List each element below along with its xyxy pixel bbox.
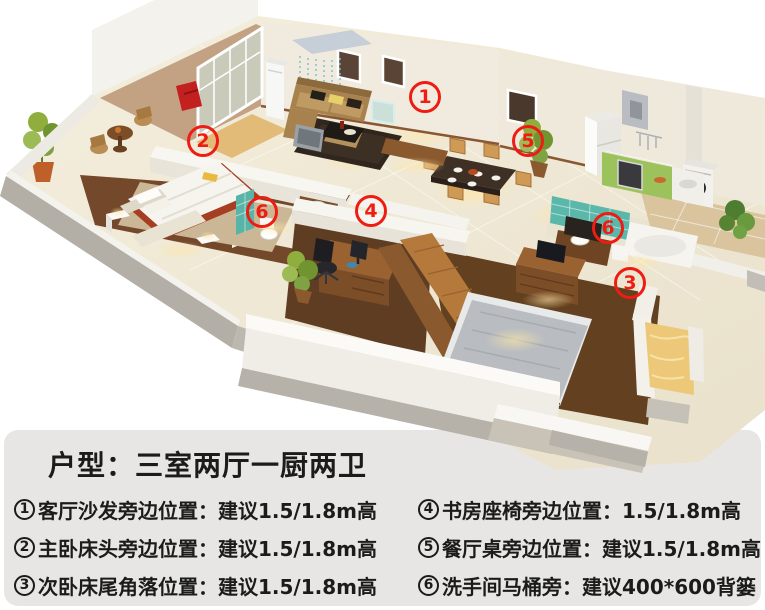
floorplan-marker: 6	[246, 196, 278, 228]
legend-item: 3次卧床尾角落位置：建议1.5/1.8m高	[14, 573, 418, 598]
legend-item-number: 4	[418, 499, 439, 520]
legend-column-right: 4书房座椅旁边位置：1.5/1.8m高5餐厅桌旁边位置：建议1.5/1.8m高6…	[418, 497, 761, 598]
legend-item-number: 6	[418, 575, 439, 596]
legend-item-number: 1	[14, 499, 35, 520]
legend-item: 6洗手间马桶旁：建议400*600背篓	[418, 573, 761, 598]
legend-item-number: 3	[14, 575, 35, 596]
legend-item-text: 客厅沙发旁边位置：建议1.5/1.8m高	[38, 495, 377, 524]
legend-item: 4书房座椅旁边位置：1.5/1.8m高	[418, 497, 761, 522]
legend-item: 2主卧床头旁边位置：建议1.5/1.8m高	[14, 535, 418, 560]
legend-item: 5餐厅桌旁边位置：建议1.5/1.8m高	[418, 535, 761, 560]
floorplan-marker: 2	[187, 125, 219, 157]
floorplan-marker: 5	[512, 125, 544, 157]
legend-item-number: 5	[418, 537, 439, 558]
floorplan-marker: 3	[614, 267, 646, 299]
floorplan-marker: 1	[409, 81, 441, 113]
legend-item-text: 书房座椅旁边位置：1.5/1.8m高	[442, 495, 741, 524]
floorplan-markers: 1234566	[0, 0, 765, 480]
legend-item-text: 餐厅桌旁边位置：建议1.5/1.8m高	[442, 533, 761, 562]
legend-item-text: 主卧床头旁边位置：建议1.5/1.8m高	[38, 533, 377, 562]
floorplan-marker: 6	[592, 212, 624, 244]
legend: 1客厅沙发旁边位置：建议1.5/1.8m高2主卧床头旁边位置：建议1.5/1.8…	[14, 497, 761, 598]
legend-item-number: 2	[14, 537, 35, 558]
legend-item: 1客厅沙发旁边位置：建议1.5/1.8m高	[14, 497, 418, 522]
floorplan-marker: 4	[355, 195, 387, 227]
page: 1234566 户型：三室两厅一厨两卫 1客厅沙发旁边位置：建议1.5/1.8m…	[0, 0, 765, 610]
legend-item-text: 次卧床尾角落位置：建议1.5/1.8m高	[38, 571, 377, 600]
legend-column-left: 1客厅沙发旁边位置：建议1.5/1.8m高2主卧床头旁边位置：建议1.5/1.8…	[14, 497, 418, 598]
legend-item-text: 洗手间马桶旁：建议400*600背篓	[442, 571, 756, 600]
